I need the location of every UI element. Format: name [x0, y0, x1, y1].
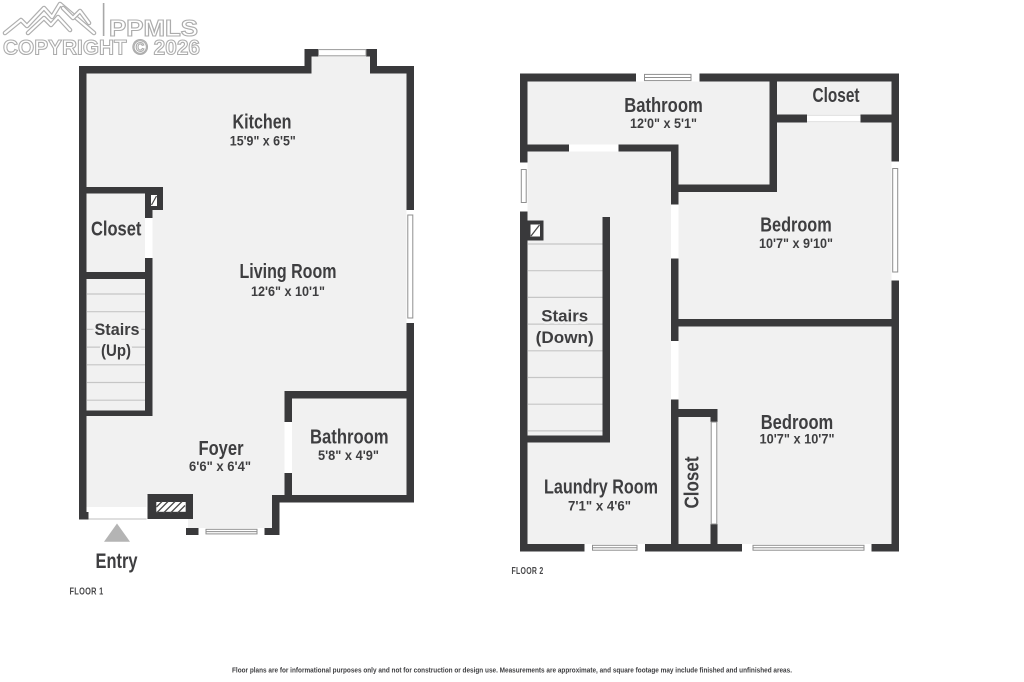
svg-text:15'9" x 6'5": 15'9" x 6'5"	[230, 133, 296, 149]
svg-text:Closet: Closet	[813, 85, 860, 107]
svg-text:COPYRIGHT © 2026: COPYRIGHT © 2026	[3, 36, 200, 60]
svg-text:10'7" x 10'7": 10'7" x 10'7"	[760, 431, 835, 447]
svg-text:Bathroom: Bathroom	[310, 426, 389, 448]
svg-text:Foyer: Foyer	[199, 438, 244, 460]
svg-text:Stairs: Stairs	[541, 306, 588, 325]
svg-text:Closet: Closet	[91, 219, 142, 241]
svg-text:Kitchen: Kitchen	[233, 112, 292, 134]
svg-text:7'1" x 4'6": 7'1" x 4'6"	[568, 498, 631, 514]
svg-text:10'7" x 9'10": 10'7" x 9'10"	[759, 235, 833, 251]
svg-text:Stairs: Stairs	[95, 320, 140, 339]
svg-text:FLOOR 1: FLOOR 1	[70, 586, 104, 598]
svg-text:Living Room: Living Room	[240, 261, 337, 283]
svg-text:Bedroom: Bedroom	[760, 215, 832, 237]
svg-text:12'0" x 5'1": 12'0" x 5'1"	[630, 115, 697, 131]
svg-text:Laundry Room: Laundry Room	[544, 477, 658, 499]
svg-text:6'6" x 6'4": 6'6" x 6'4"	[189, 458, 251, 474]
svg-text:Floor plans are for informatio: Floor plans are for informational purpos…	[232, 668, 792, 675]
svg-text:FLOOR 2: FLOOR 2	[512, 565, 544, 577]
svg-text:Closet: Closet	[682, 456, 704, 508]
svg-text:Bathroom: Bathroom	[624, 95, 703, 117]
svg-text:5'8" x 4'9": 5'8" x 4'9"	[318, 447, 379, 463]
svg-text:(Down): (Down)	[536, 328, 594, 347]
svg-text:12'6" x 10'1": 12'6" x 10'1"	[251, 283, 325, 299]
svg-text:Entry: Entry	[96, 550, 138, 573]
svg-text:(Up): (Up)	[101, 341, 131, 360]
